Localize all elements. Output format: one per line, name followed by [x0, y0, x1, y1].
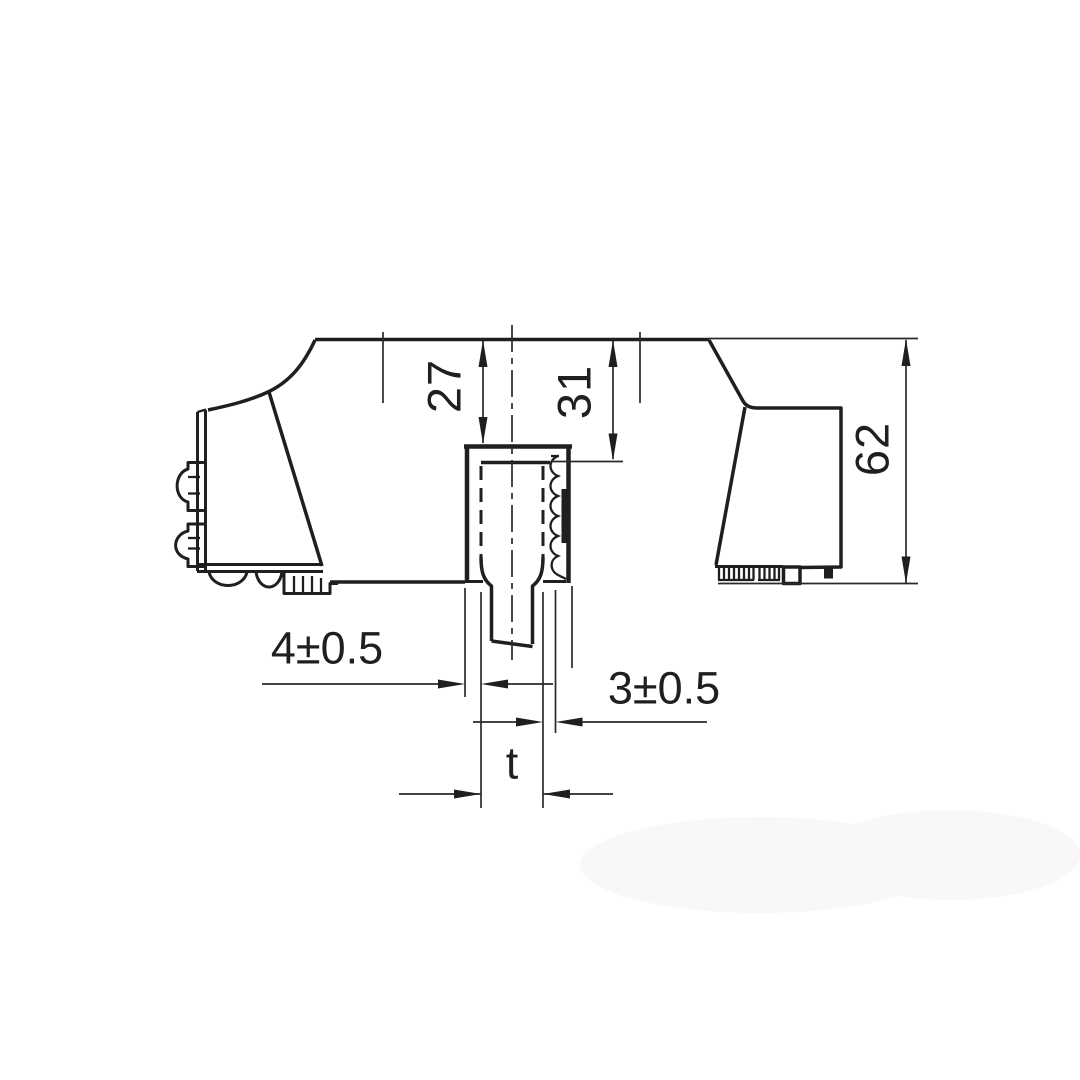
screw-boss-upper	[177, 463, 205, 511]
dimension-62: 62	[846, 339, 911, 584]
dimension-27: 27	[418, 340, 488, 444]
channel-flare-right	[533, 557, 544, 644]
right-small-tab	[824, 569, 833, 579]
left-housing-feet	[209, 572, 338, 594]
dim-label-t: t	[506, 738, 519, 789]
dim-3-arrow-left	[556, 718, 583, 727]
dim-31-arrow-up	[609, 340, 618, 367]
dimension-3: 3±0.5	[473, 663, 720, 727]
dim-27-arrow-down	[479, 417, 488, 444]
dim-31-arrow-down	[609, 434, 618, 461]
dimension-t: t	[399, 738, 613, 799]
dim-label-62: 62	[846, 422, 899, 476]
teeth-group-2	[758, 566, 780, 580]
dim-label-27: 27	[418, 359, 471, 413]
right-housing-outline	[709, 340, 841, 584]
dim-t-arrow-right	[454, 790, 481, 799]
right-foot-block	[784, 567, 801, 584]
foot-bump-1	[209, 572, 247, 586]
channel-flare-left	[481, 557, 492, 641]
dimension-31: 31	[548, 340, 618, 461]
dim-62-arrow-up	[902, 339, 911, 366]
teeth-group-1	[718, 566, 754, 580]
side-screw-bosses	[176, 463, 205, 567]
housing-topleft-curve	[208, 340, 315, 410]
housing-interior-slant	[269, 392, 322, 566]
dim-27-arrow-up	[479, 340, 488, 367]
dim-3-arrow-right	[516, 718, 543, 727]
right-housing-interior-slant	[716, 407, 745, 565]
dim-4-arrow-right	[438, 680, 465, 689]
drawing-page: 27 31 62 4±0.5 3±0.5 t	[0, 0, 1080, 1080]
spring-clip-bar	[562, 489, 569, 543]
dim-4-arrow-left	[481, 680, 508, 689]
screw-boss-lower	[176, 524, 205, 567]
dim-label-3: 3±0.5	[608, 663, 720, 714]
technical-drawing: 27 31 62 4±0.5 3±0.5 t	[0, 0, 1080, 1080]
dim-t-arrow-left	[543, 790, 570, 799]
watermark-smudge	[580, 810, 1080, 913]
foot-bump-2	[256, 572, 282, 587]
right-housing-profile	[709, 340, 841, 568]
dim-label-4: 4±0.5	[271, 623, 383, 674]
dimension-4: 4±0.5	[262, 623, 553, 689]
dim-62-arrow-down	[902, 557, 911, 584]
dim-label-31: 31	[548, 365, 601, 419]
